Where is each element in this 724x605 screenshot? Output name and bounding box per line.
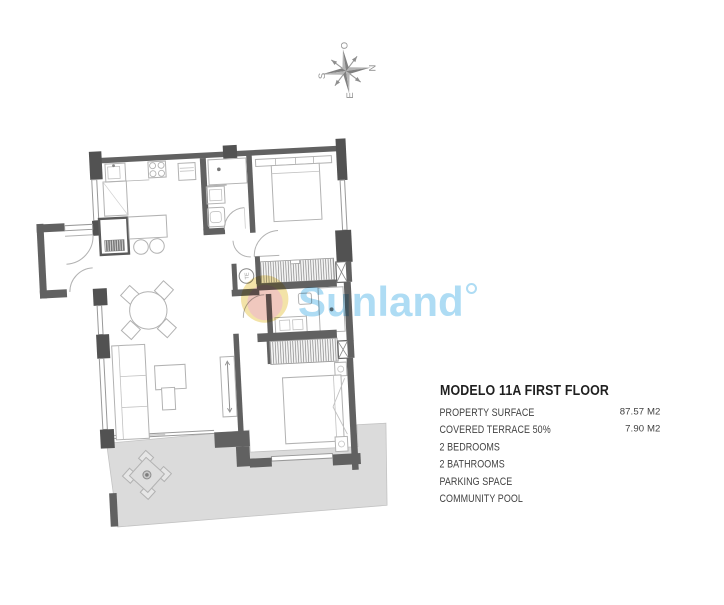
svg-text:2 BATHROOMS: 2 BATHROOMS [440, 459, 506, 471]
svg-text:O: O [340, 42, 351, 49]
svg-text:S: S [317, 73, 328, 79]
svg-text:Sunland: Sunland [298, 278, 464, 325]
svg-text:MODELO 11A FIRST FLOOR: MODELO 11A FIRST FLOOR [440, 382, 609, 398]
svg-text:2 BEDROOMS: 2 BEDROOMS [440, 442, 501, 454]
svg-text:E: E [345, 92, 356, 98]
svg-text:N: N [368, 64, 379, 71]
svg-text:PROPERTY SURFACE: PROPERTY SURFACE [440, 407, 535, 419]
svg-text:7.90 M2: 7.90 M2 [625, 424, 660, 435]
svg-text:COVERED TERRACE 50%: COVERED TERRACE 50% [440, 425, 551, 437]
svg-text:TE: TE [244, 272, 250, 280]
svg-text:COMMUNITY POOL: COMMUNITY POOL [440, 493, 524, 505]
svg-text:87.57 M2: 87.57 M2 [620, 407, 661, 418]
svg-text:PARKING SPACE: PARKING SPACE [440, 476, 513, 488]
